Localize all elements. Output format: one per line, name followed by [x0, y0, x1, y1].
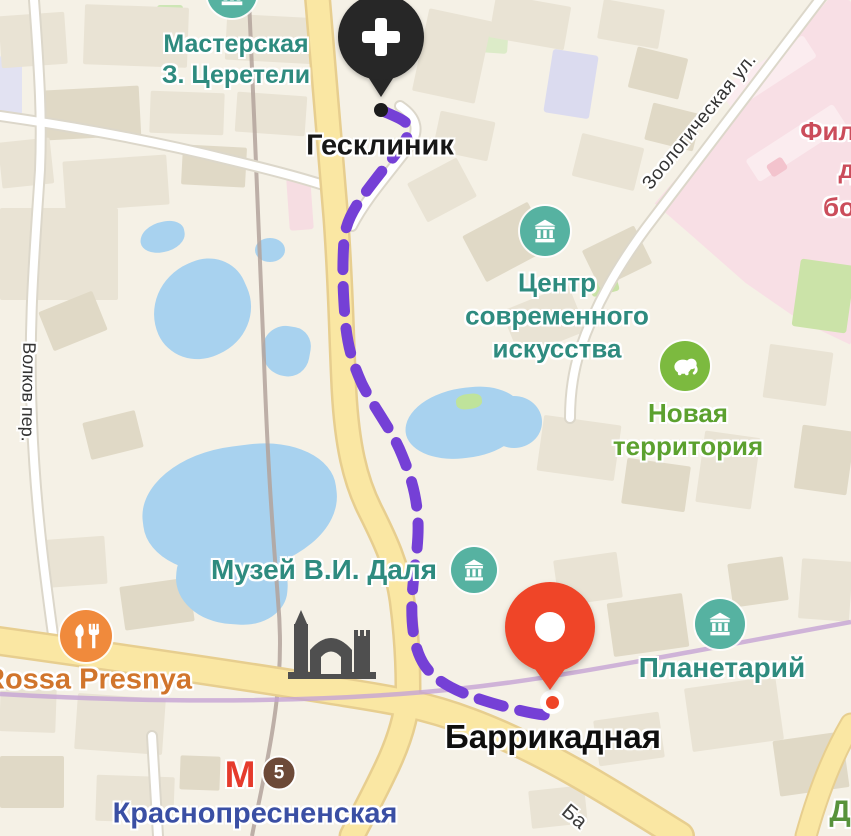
metro-m-logo[interactable]: М [225, 754, 256, 796]
museum-icon[interactable] [695, 599, 745, 649]
art-center-line2: современного [465, 300, 649, 333]
poi-label-rossa-presnya[interactable]: Rossa Presnya [0, 664, 192, 697]
diagonal-street [0, 116, 332, 188]
hospital-label-fragment: Фил д бо [800, 112, 851, 226]
destination-pin[interactable] [500, 580, 600, 704]
poi-label-workshop[interactable]: Мастерская З. Церетели [162, 29, 310, 91]
zoo-entrance-landmark [284, 610, 380, 684]
museum-icon[interactable] [520, 206, 570, 256]
new-territory-line1: Новая [613, 397, 763, 430]
map-canvas[interactable]: М 5 Мастерская З. Церетели Гесклиник Зоо… [0, 0, 851, 836]
art-center-line3: искусства [465, 333, 649, 366]
hospital-line3: бо [800, 188, 851, 226]
hospital-line1: Фил [800, 112, 851, 150]
poi-label-new-territory[interactable]: Новая территория [613, 397, 763, 463]
metro-station-label[interactable]: Краснопресненская [113, 798, 398, 831]
origin-pin-label[interactable]: Гесклиник [306, 130, 454, 163]
clinic-street [352, 106, 416, 226]
metro-line-5-badge: 5 [262, 756, 297, 791]
destination-pin-label[interactable]: Баррикадная [445, 718, 661, 756]
poi-label-art-center[interactable]: Центр современного искусства [465, 267, 649, 366]
green-label-fragment: Д [829, 795, 850, 829]
restaurant-icon[interactable] [60, 610, 112, 662]
museum-icon[interactable] [451, 547, 497, 593]
street-label-volkov: Волков пер. [17, 342, 40, 442]
hospital-line2: д [800, 150, 851, 188]
metro-line-number: 5 [274, 762, 285, 784]
workshop-line1: Мастерская [162, 29, 310, 60]
poi-label-dal-museum[interactable]: Музей В.И. Даля [211, 554, 437, 586]
poi-label-planetarium[interactable]: Планетарий [639, 652, 805, 684]
art-center-line1: Центр [465, 267, 649, 300]
new-territory-line2: территория [613, 430, 763, 463]
origin-point-dot [374, 103, 388, 117]
elephant-icon[interactable] [660, 341, 710, 391]
workshop-line2: З. Церетели [162, 60, 310, 91]
railway-line [249, 0, 280, 836]
origin-pin-medical-cross[interactable] [333, 0, 429, 103]
